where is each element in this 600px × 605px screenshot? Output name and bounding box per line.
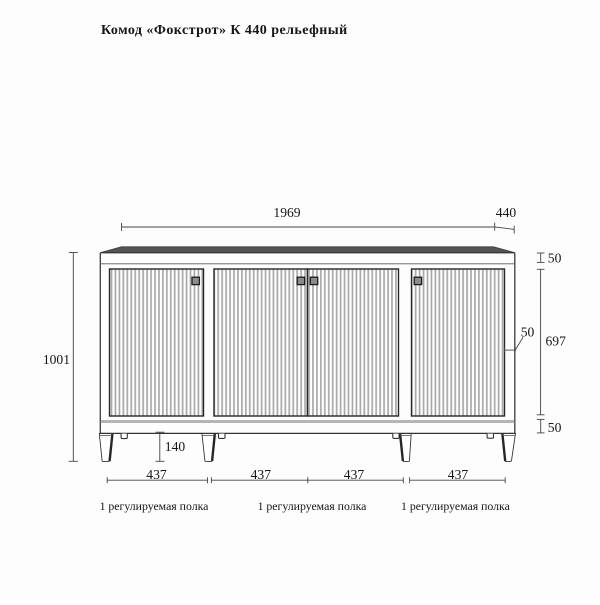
svg-text:1001: 1001 <box>43 352 70 367</box>
svg-text:437: 437 <box>146 467 167 482</box>
svg-text:50: 50 <box>521 325 535 340</box>
svg-text:Комод «Фокстрот» К 440 рельефн: Комод «Фокстрот» К 440 рельефный <box>101 23 348 38</box>
svg-text:437: 437 <box>251 467 272 482</box>
svg-text:1969: 1969 <box>273 205 300 220</box>
svg-text:1 регулируемая полка: 1 регулируемая полка <box>258 499 368 513</box>
svg-text:1 регулируемая полка: 1 регулируемая полка <box>100 499 210 513</box>
svg-text:440: 440 <box>496 205 517 220</box>
svg-text:437: 437 <box>344 467 365 482</box>
svg-text:50: 50 <box>548 251 562 266</box>
svg-text:697: 697 <box>546 334 567 349</box>
svg-text:140: 140 <box>165 439 186 454</box>
svg-text:437: 437 <box>448 467 469 482</box>
svg-text:1 регулируемая полка: 1 регулируемая полка <box>401 499 511 513</box>
svg-text:50: 50 <box>548 420 562 435</box>
